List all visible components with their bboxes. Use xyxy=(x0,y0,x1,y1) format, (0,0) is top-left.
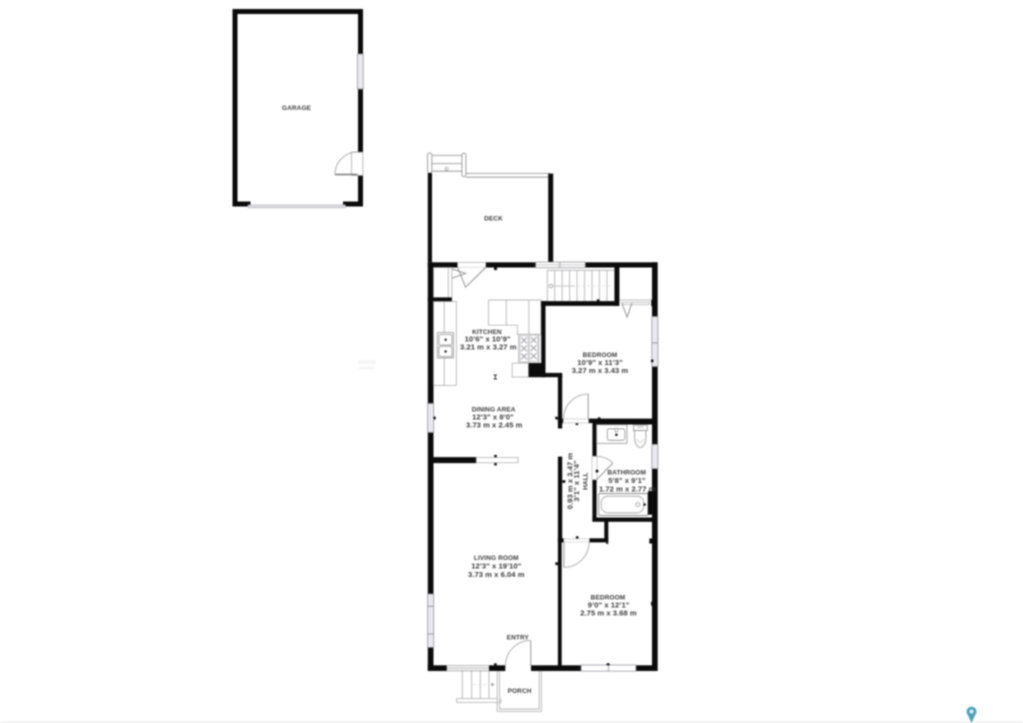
svg-text:2.75 m x 3.68 m: 2.75 m x 3.68 m xyxy=(580,609,637,618)
svg-text:ENTRY: ENTRY xyxy=(507,635,530,642)
svg-text:1.72 m x 2.77 m: 1.72 m x 2.77 m xyxy=(599,485,656,494)
svg-text:DECK: DECK xyxy=(484,216,503,223)
svg-text:HALL: HALL xyxy=(583,472,590,490)
svg-text:0.93 m x 3.47 m: 0.93 m x 3.47 m xyxy=(566,453,575,510)
svg-text:3.73 m x 6.04 m: 3.73 m x 6.04 m xyxy=(468,570,525,579)
svg-text:3.21 m x 3.27 m: 3.21 m x 3.27 m xyxy=(460,343,517,352)
svg-text:PORCH: PORCH xyxy=(508,688,532,695)
svg-text:3.27 m x 3.43 m: 3.27 m x 3.43 m xyxy=(572,366,629,375)
svg-text:3.73 m x 2.45 m: 3.73 m x 2.45 m xyxy=(466,421,523,430)
svg-text:GARAGE: GARAGE xyxy=(282,105,312,112)
